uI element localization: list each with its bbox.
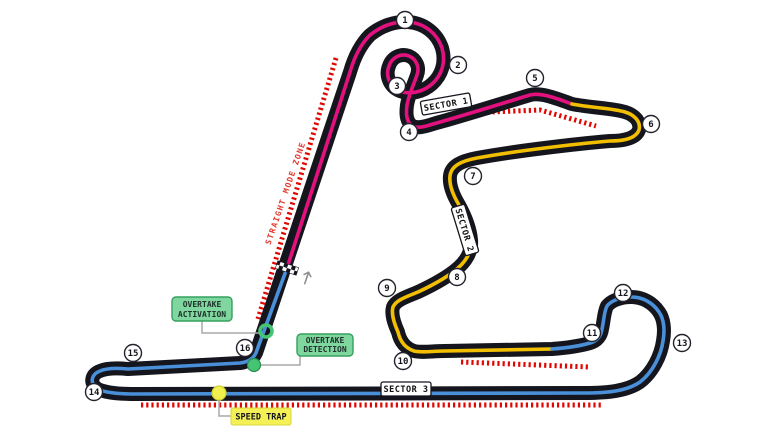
corner-marker-14: 14 [86,384,103,401]
corner-marker-6: 6 [643,116,660,133]
corner-marker-9: 9 [379,280,396,297]
overtake-activation-connector [202,321,259,333]
svg-text:5: 5 [532,74,537,84]
direction-arrow-icon [301,271,311,285]
svg-text:14: 14 [89,388,100,398]
corner-marker-5: 5 [527,70,544,87]
svg-text:OVERTAKE: OVERTAKE [306,336,345,345]
overtake-detection-connector [261,356,300,365]
corner-marker-15: 15 [125,345,142,362]
speed-trap-connector [219,400,231,416]
speed-trap-marker-icon [212,386,226,400]
svg-text:15: 15 [128,349,139,359]
svg-text:6: 6 [648,120,653,130]
corner-marker-3: 3 [389,78,406,95]
svg-text:SPEED TRAP: SPEED TRAP [235,413,286,423]
corner-marker-12: 12 [615,285,632,302]
overtake-detection-marker-icon [248,359,261,372]
corner-marker-1: 1 [397,12,414,29]
svg-text:2: 2 [455,61,460,71]
corner-marker-2: 2 [450,57,467,74]
corner-marker-13: 13 [674,335,691,352]
corner-marker-10: 10 [395,353,412,370]
svg-text:16: 16 [240,344,251,354]
svg-text:10: 10 [398,357,409,367]
sector3-label: SECTOR 3 [381,382,431,396]
svg-text:12: 12 [618,289,629,299]
corner-marker-8: 8 [449,269,466,286]
overtake-activation-callout: OVERTAKE ACTIVATION [172,297,232,321]
corner-marker-4: 4 [401,124,418,141]
trackside-strip-middle-straight [461,362,589,367]
circuit-map: STRAIGHT MODE ZONE SECTOR 1 SECTOR 2 SEC… [0,0,774,435]
corner-marker-16: 16 [237,340,254,357]
overtake-detection-callout: OVERTAKE DETECTION [297,334,353,356]
svg-text:SECTOR 3: SECTOR 3 [384,385,429,395]
svg-text:DETECTION: DETECTION [303,345,347,354]
svg-text:7: 7 [470,172,475,182]
corner-marker-11: 11 [584,325,601,342]
svg-text:OVERTAKE: OVERTAKE [183,300,222,309]
svg-text:9: 9 [384,284,389,294]
trackside-strip-main-straight [258,58,336,319]
speed-trap-callout: SPEED TRAP [231,408,291,425]
svg-text:13: 13 [677,339,688,349]
svg-text:ACTIVATION: ACTIVATION [178,310,226,319]
svg-text:4: 4 [406,128,412,138]
svg-text:3: 3 [394,82,399,92]
circuit-svg: STRAIGHT MODE ZONE SECTOR 1 SECTOR 2 SEC… [0,0,774,435]
svg-text:11: 11 [587,329,598,339]
svg-text:8: 8 [454,273,459,283]
track-outline [92,22,664,394]
corner-marker-7: 7 [465,168,482,185]
svg-text:1: 1 [402,16,407,26]
